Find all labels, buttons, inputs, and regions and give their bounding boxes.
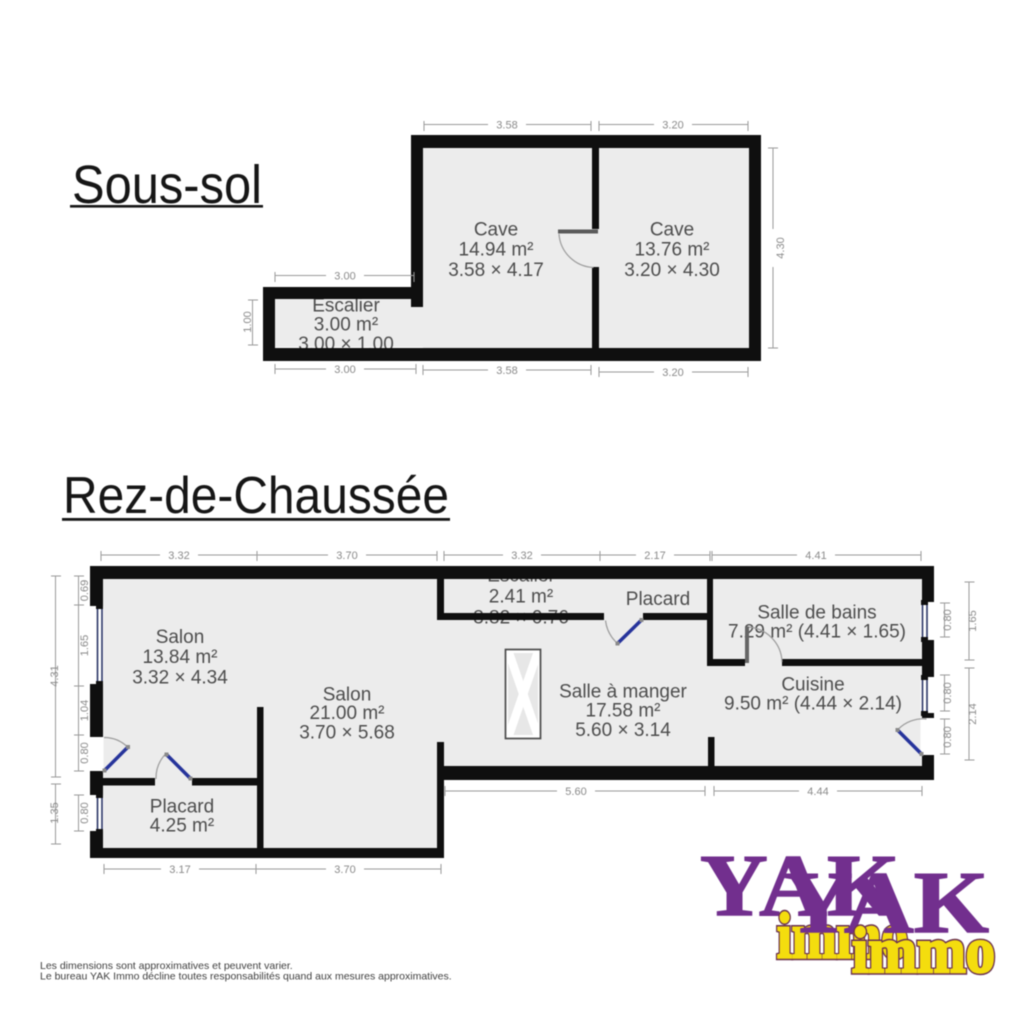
- svg-text:3.32: 3.32: [168, 550, 189, 562]
- svg-text:3.00: 3.00: [334, 271, 355, 283]
- svg-text:Salle de bains: Salle de bains: [757, 603, 876, 624]
- svg-text:21.00 m²: 21.00 m²: [310, 703, 385, 724]
- svg-text:3.32 × 4.34: 3.32 × 4.34: [132, 668, 228, 689]
- svg-text:Cave: Cave: [650, 220, 694, 241]
- svg-text:4.25 m²: 4.25 m²: [150, 816, 214, 837]
- svg-text:14.94 m²: 14.94 m²: [459, 240, 534, 261]
- svg-text:0.69: 0.69: [79, 580, 91, 601]
- svg-text:3.20: 3.20: [662, 120, 683, 132]
- svg-text:3.70: 3.70: [334, 864, 355, 876]
- svg-text:17.58 m²: 17.58 m²: [586, 701, 661, 722]
- svg-text:Rez-de-Chaussée: Rez-de-Chaussée: [63, 467, 449, 525]
- svg-text:Cuisine: Cuisine: [781, 675, 844, 696]
- svg-text:1.35: 1.35: [49, 802, 61, 823]
- svg-text:Placard: Placard: [626, 589, 690, 610]
- svg-text:Le bureau YAK Immo décline tou: Le bureau YAK Immo décline toutes respon…: [40, 971, 452, 983]
- svg-text:immo: immo: [852, 915, 995, 987]
- svg-text:3.00 m²: 3.00 m²: [314, 315, 378, 336]
- svg-text:5.60 × 3.14: 5.60 × 3.14: [575, 720, 671, 741]
- svg-text:3.20: 3.20: [662, 367, 683, 379]
- svg-text:0.80: 0.80: [79, 802, 91, 823]
- svg-text:Cave: Cave: [474, 220, 518, 241]
- svg-text:4.41: 4.41: [805, 550, 826, 562]
- svg-text:4.30: 4.30: [775, 237, 787, 258]
- svg-text:13.76 m²: 13.76 m²: [635, 240, 710, 261]
- svg-text:3.17: 3.17: [169, 864, 190, 876]
- svg-text:4.44: 4.44: [807, 786, 828, 798]
- svg-text:3.58: 3.58: [496, 120, 517, 132]
- svg-text:3.20 × 4.30: 3.20 × 4.30: [624, 260, 720, 281]
- svg-text:2.17: 2.17: [644, 550, 665, 562]
- svg-text:3.70: 3.70: [336, 550, 357, 562]
- svg-text:Placard: Placard: [150, 797, 214, 818]
- svg-text:0.80: 0.80: [79, 742, 91, 763]
- svg-text:Salon: Salon: [156, 627, 205, 648]
- svg-text:0.80: 0.80: [942, 609, 954, 630]
- svg-text:0.80: 0.80: [942, 682, 954, 703]
- svg-text:3.70 × 5.68: 3.70 × 5.68: [299, 723, 395, 744]
- svg-text:1.04: 1.04: [79, 700, 91, 721]
- svg-text:7.29 m² (4.41 × 1.65): 7.29 m² (4.41 × 1.65): [728, 622, 906, 643]
- svg-text:2.41 m²: 2.41 m²: [489, 587, 553, 608]
- svg-text:1.65: 1.65: [967, 610, 979, 631]
- svg-text:5.60: 5.60: [565, 786, 586, 798]
- svg-text:1.00: 1.00: [242, 311, 254, 332]
- svg-text:0.80: 0.80: [942, 726, 954, 747]
- svg-text:13.84 m²: 13.84 m²: [143, 647, 218, 668]
- svg-text:3.00: 3.00: [334, 364, 355, 376]
- svg-text:4.31: 4.31: [49, 665, 61, 686]
- svg-text:3.32: 3.32: [511, 550, 532, 562]
- svg-text:3.58 × 4.17: 3.58 × 4.17: [448, 260, 544, 281]
- svg-text:Salle à manger: Salle à manger: [559, 682, 687, 703]
- svg-text:9.50 m² (4.44 × 2.14): 9.50 m² (4.44 × 2.14): [724, 694, 902, 715]
- svg-text:3.58: 3.58: [496, 365, 517, 377]
- svg-text:2.14: 2.14: [967, 703, 979, 724]
- svg-text:1.65: 1.65: [79, 635, 91, 656]
